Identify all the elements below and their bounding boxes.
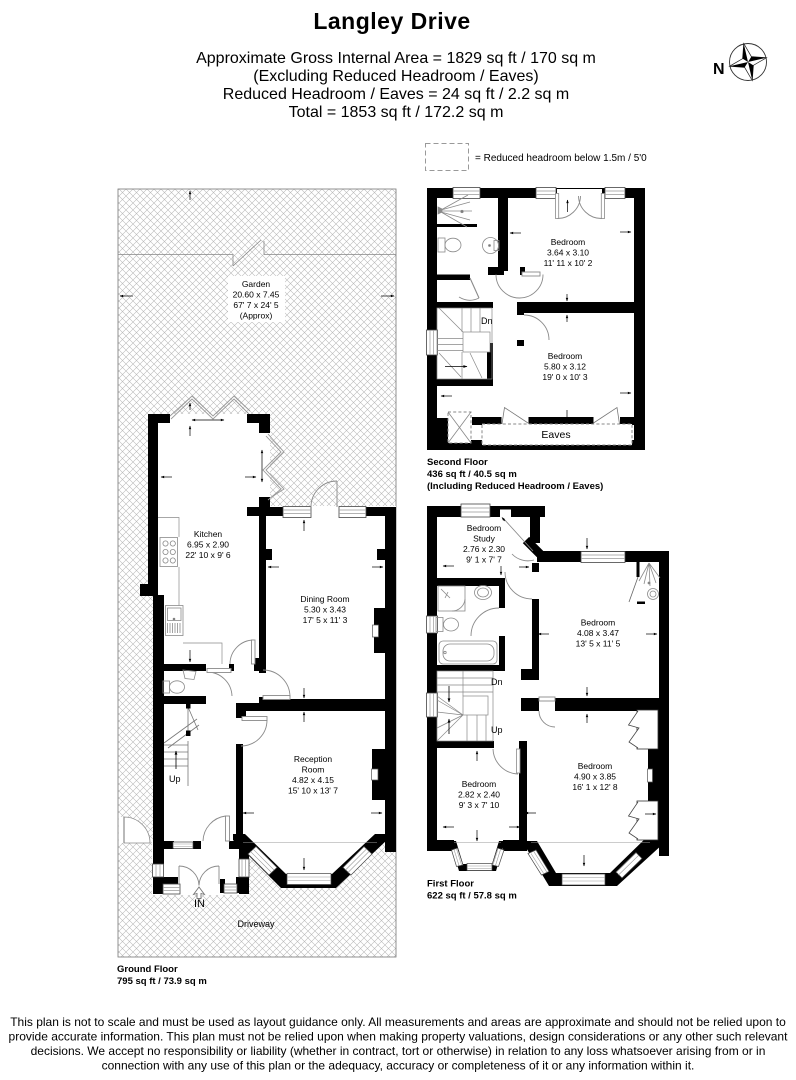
svg-text:Kitchen: Kitchen — [194, 529, 223, 539]
svg-text:9' 1 x 7' 7: 9' 1 x 7' 7 — [466, 555, 502, 565]
svg-text:connection with any use of thi: connection with any use of this plan or … — [102, 1059, 695, 1073]
svg-text:N: N — [713, 61, 725, 78]
svg-text:Total = 1853 sq ft / 172.2 sq: Total = 1853 sq ft / 172.2 sq m — [289, 104, 504, 121]
svg-text:Dining Room: Dining Room — [300, 594, 349, 604]
svg-text:20.60 x 7.45: 20.60 x 7.45 — [233, 290, 280, 300]
svg-text:Dn: Dn — [481, 316, 493, 326]
svg-text:Bedroom: Bedroom — [462, 779, 497, 789]
svg-text:11' 11 x 10' 2: 11' 11 x 10' 2 — [544, 258, 593, 268]
svg-text:5.30 x 3.43: 5.30 x 3.43 — [304, 605, 346, 615]
svg-text:436 sq ft / 40.5 sq m: 436 sq ft / 40.5 sq m — [427, 469, 517, 480]
svg-text:Bedroom: Bedroom — [467, 523, 502, 533]
svg-text:67' 7 x 24' 5: 67' 7 x 24' 5 — [233, 300, 279, 310]
svg-text:9' 3 x 7' 10: 9' 3 x 7' 10 — [459, 800, 500, 810]
svg-text:4.82 x 4.15: 4.82 x 4.15 — [292, 775, 334, 785]
svg-text:Bedroom: Bedroom — [548, 351, 583, 361]
svg-text:13' 5 x 11' 5: 13' 5 x 11' 5 — [576, 639, 621, 649]
svg-text:4.08 x 3.47: 4.08 x 3.47 — [577, 628, 619, 638]
svg-text:Bedroom: Bedroom — [551, 237, 586, 247]
svg-text:19' 0 x 10' 3: 19' 0 x 10' 3 — [542, 372, 588, 382]
svg-text:Eaves: Eaves — [541, 429, 570, 441]
svg-text:15' 10 x 13' 7: 15' 10 x 13' 7 — [288, 786, 338, 796]
svg-text:17' 5 x 11' 3: 17' 5 x 11' 3 — [303, 615, 348, 625]
svg-text:3.64 x 3.10: 3.64 x 3.10 — [547, 248, 589, 258]
svg-text:(Approx): (Approx) — [240, 311, 273, 321]
svg-text:This plan is not to scale and: This plan is not to scale and must be us… — [10, 1015, 786, 1029]
svg-text:First Floor: First Floor — [427, 879, 474, 890]
svg-text:Bedroom: Bedroom — [581, 618, 616, 628]
svg-text:Driveway: Driveway — [237, 919, 275, 929]
svg-text:5.80 x 3.12: 5.80 x 3.12 — [544, 362, 586, 372]
svg-text:Langley Drive: Langley Drive — [313, 8, 470, 34]
svg-text:provide accurate information.: provide accurate information. This plan … — [9, 1030, 789, 1044]
svg-text:Up: Up — [169, 774, 181, 784]
svg-text:622 sq ft / 57.8 sq m: 622 sq ft / 57.8 sq m — [427, 891, 517, 902]
svg-text:Dn: Dn — [491, 677, 503, 687]
svg-text:22' 10 x 9' 6: 22' 10 x 9' 6 — [185, 550, 231, 560]
svg-text:4.90 x 3.85: 4.90 x 3.85 — [574, 772, 616, 782]
svg-text:= Reduced headroom below 1.5m: = Reduced headroom below 1.5m / 5'0 — [475, 153, 647, 164]
svg-text:Garden: Garden — [242, 279, 271, 289]
svg-text:Reduced Headroom / Eaves = 24: Reduced Headroom / Eaves = 24 sq ft / 2.… — [223, 86, 569, 103]
svg-text:795 sq ft / 73.9 sq m: 795 sq ft / 73.9 sq m — [117, 976, 207, 987]
svg-text:IN: IN — [194, 898, 205, 910]
svg-text:2.76 x 2.30: 2.76 x 2.30 — [463, 544, 505, 554]
svg-text:Second Floor: Second Floor — [427, 457, 488, 468]
svg-text:Reception: Reception — [294, 754, 333, 764]
svg-text:Room: Room — [302, 765, 325, 775]
svg-text:(Excluding Reduced Headroom /: (Excluding Reduced Headroom / Eaves) — [253, 68, 538, 85]
svg-text:(Including Reduced Headroom /: (Including Reduced Headroom / Eaves) — [427, 481, 603, 492]
svg-text:2.82 x 2.40: 2.82 x 2.40 — [458, 790, 500, 800]
svg-text:Bedroom: Bedroom — [578, 761, 613, 771]
svg-text:decisions. We accept no respon: decisions. We accept no responsibility o… — [31, 1044, 766, 1058]
svg-text:6.95 x 2.90: 6.95 x 2.90 — [187, 540, 229, 550]
svg-text:Study: Study — [473, 534, 495, 544]
svg-text:Approximate Gross Internal Are: Approximate Gross Internal Area = 1829 s… — [196, 50, 596, 67]
svg-text:Up: Up — [491, 725, 503, 735]
svg-text:Ground Floor: Ground Floor — [117, 964, 178, 975]
svg-text:16' 1 x 12' 8: 16' 1 x 12' 8 — [572, 782, 618, 792]
